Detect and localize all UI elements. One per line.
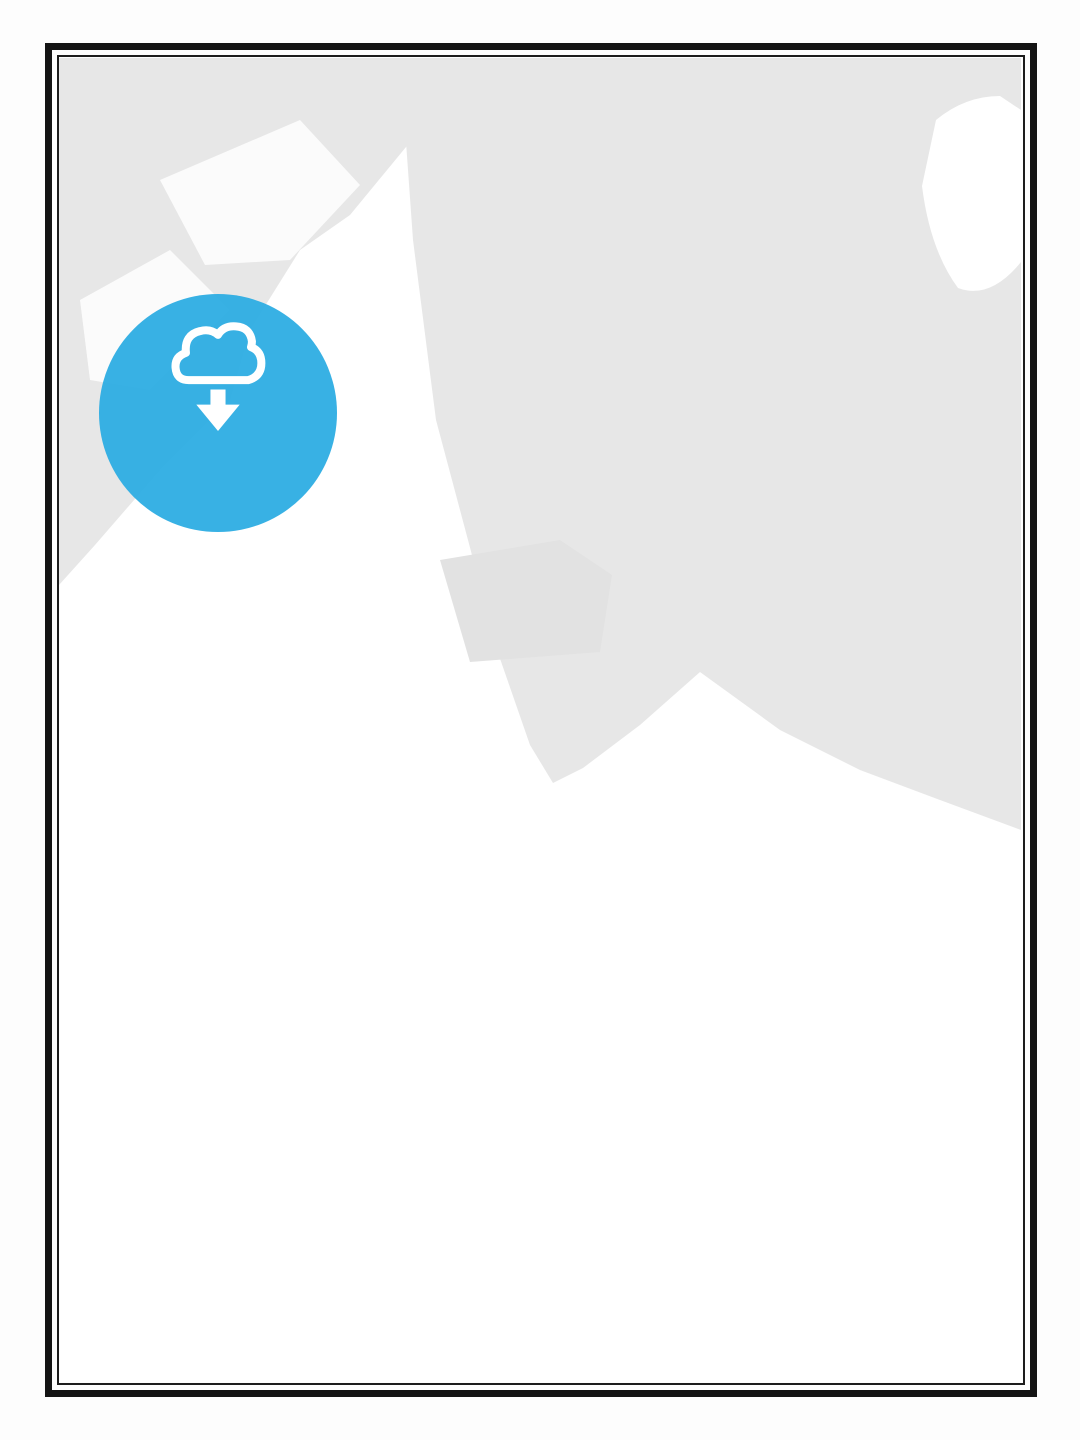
map-poster	[0, 0, 1080, 1440]
cloud-download-icon	[155, 316, 281, 448]
title-block	[0, 1150, 1080, 1189]
coordinates	[0, 1167, 1080, 1189]
licensable-badge[interactable]	[99, 294, 337, 532]
